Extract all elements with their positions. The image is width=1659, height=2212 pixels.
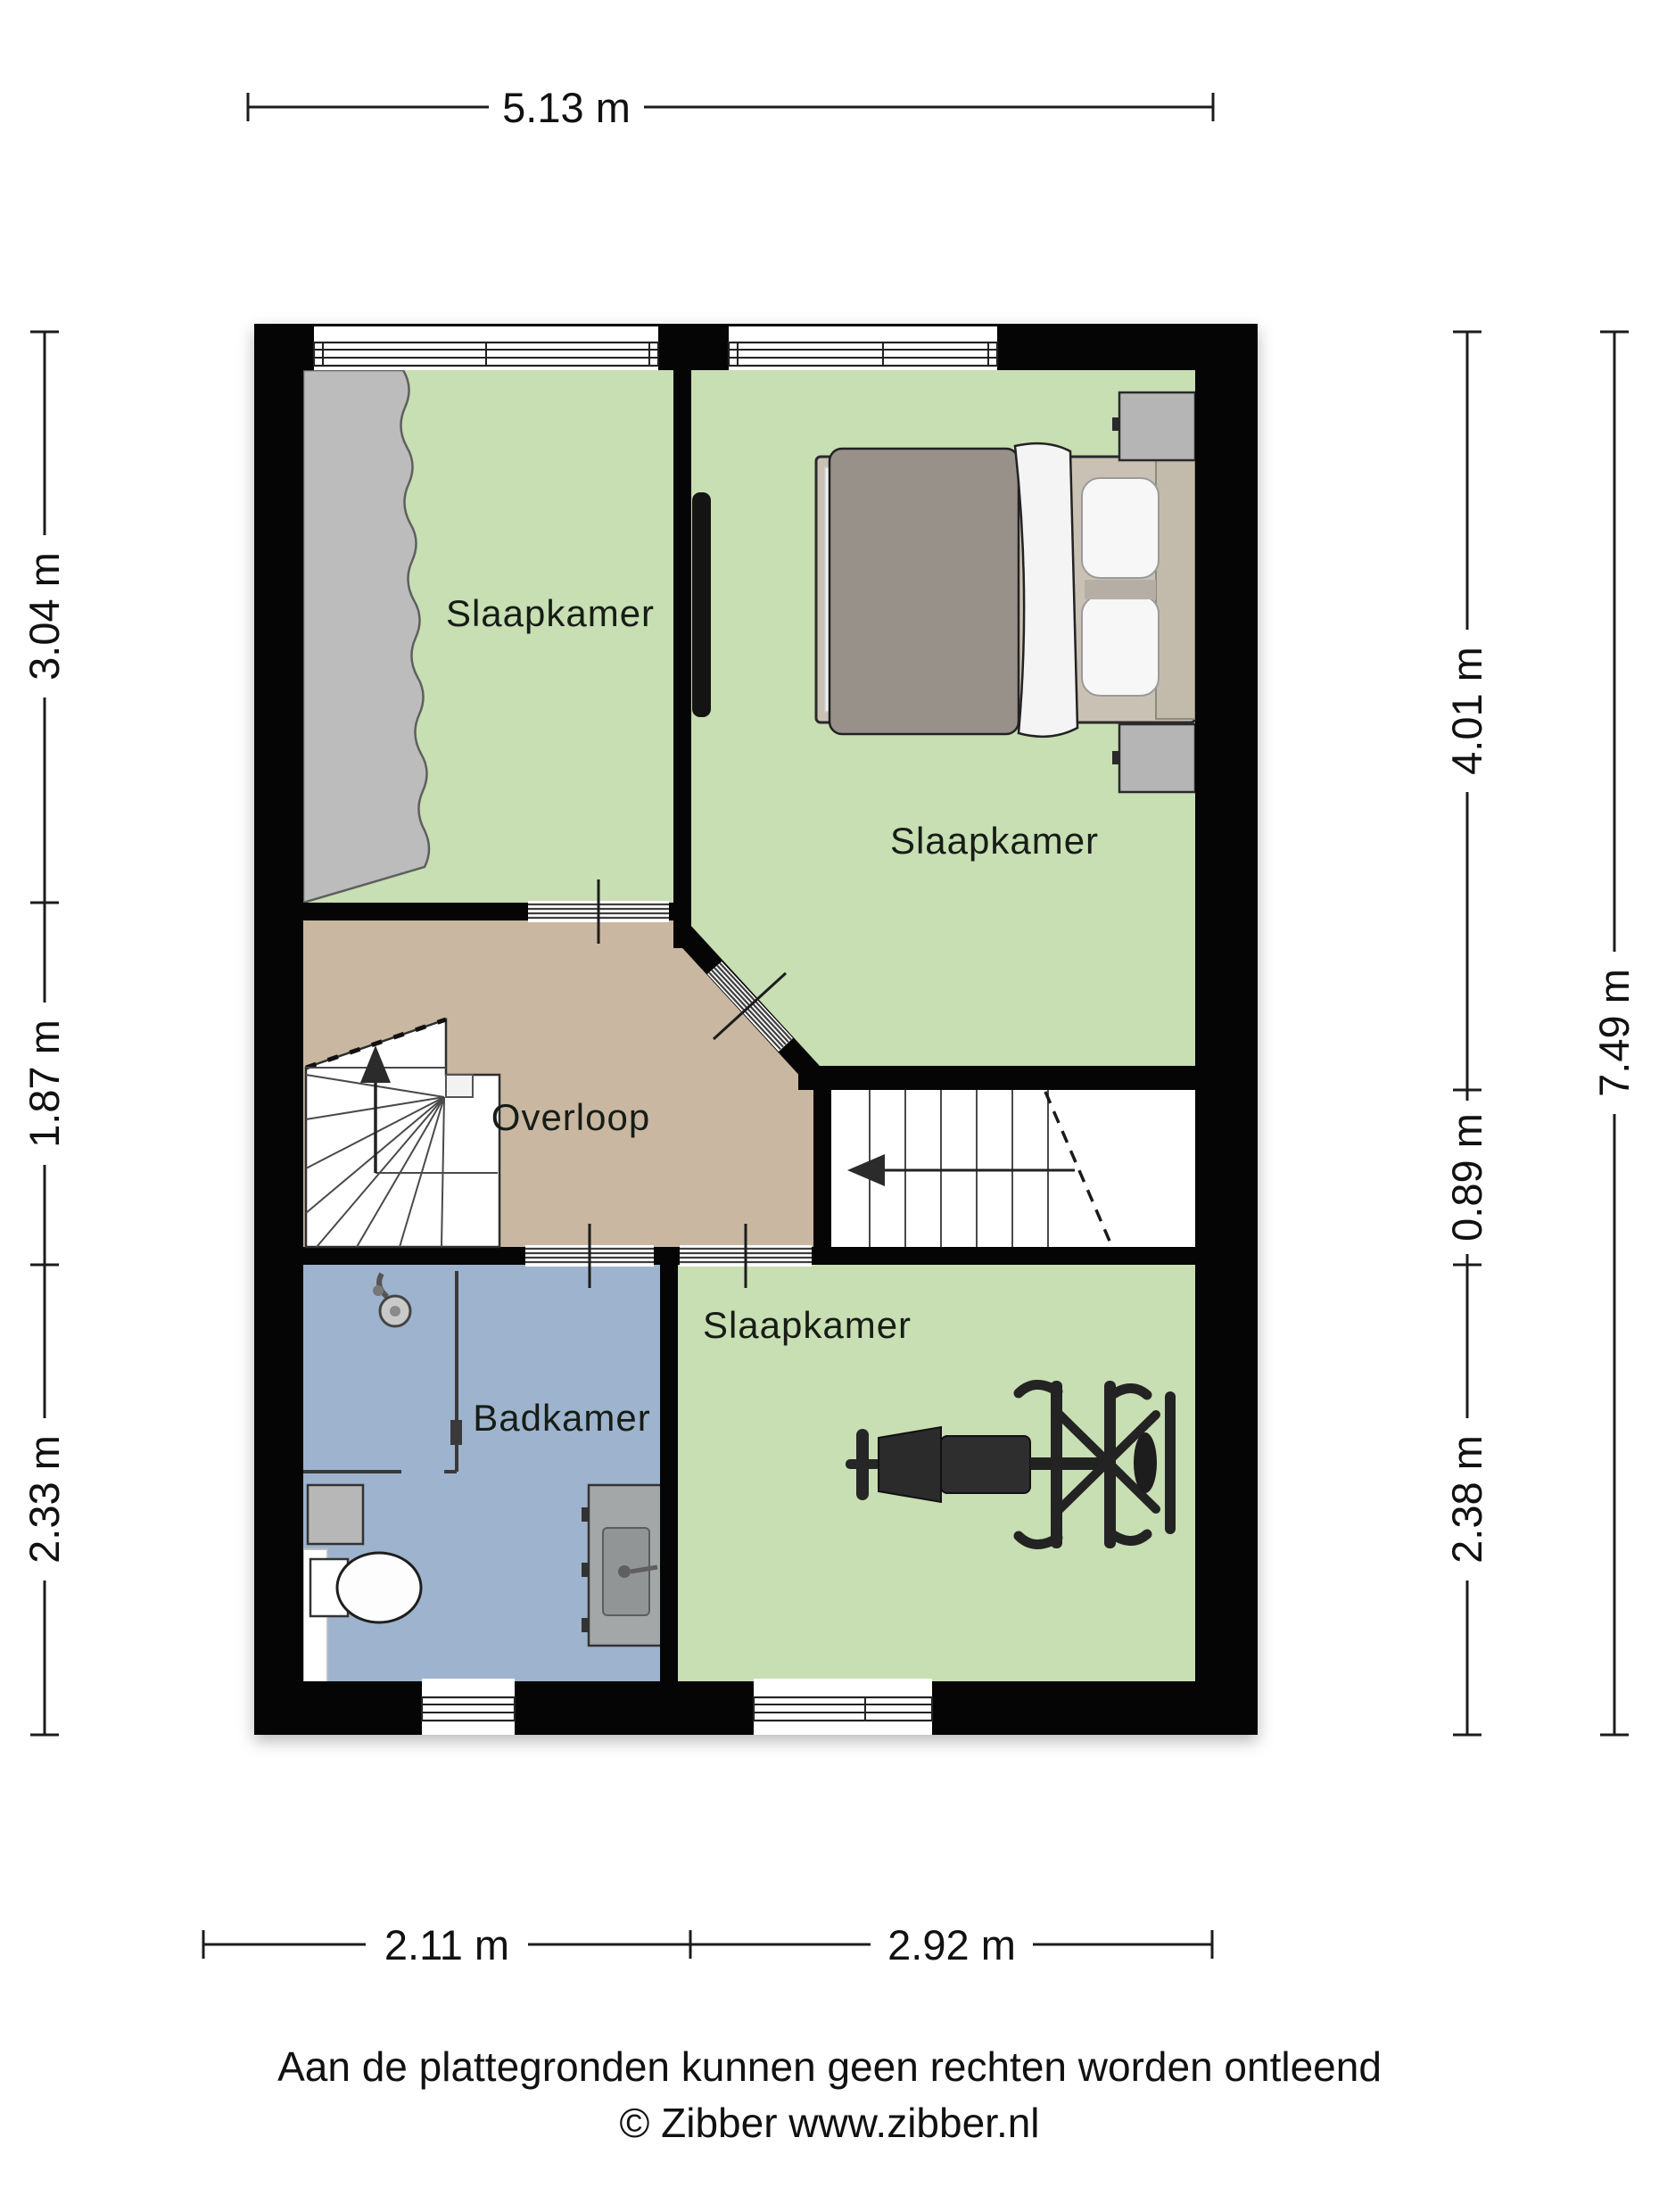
window-bottom-bedroom xyxy=(754,1679,932,1735)
dimension-top-label: 5.13 m xyxy=(502,84,631,131)
pillow-gap xyxy=(1085,580,1156,599)
dimension-right-3-label: 2.38 m xyxy=(1443,1435,1490,1564)
dimension-right-2-label: 0.89 m xyxy=(1443,1113,1490,1242)
dimension-top: 5.13 m xyxy=(248,84,1213,131)
tv-icon xyxy=(692,492,711,717)
nightstand xyxy=(1119,392,1195,460)
stairs-down xyxy=(831,1090,1195,1247)
wall-bedroom-stairwell xyxy=(798,1066,1258,1090)
floor-plan-canvas: Slaapkamer Slaapkamer Overloop Badkamer … xyxy=(0,0,1659,2212)
footer-disclaimer: Aan de plattegronden kunnen geen rechten… xyxy=(277,2043,1382,2090)
toilet-icon xyxy=(310,1553,421,1622)
dimension-right-outer: 7.49 m xyxy=(1590,332,1638,1735)
wall-bathroom-bedroom xyxy=(660,1265,678,1681)
nightstand xyxy=(1119,724,1195,792)
window-bathroom xyxy=(422,1679,515,1735)
label-bedroom-top-left: Slaapkamer xyxy=(446,592,655,634)
pillow xyxy=(1082,478,1159,578)
bed-duvet xyxy=(829,449,1019,734)
label-bathroom: Badkamer xyxy=(473,1397,650,1439)
dimension-bottom-1-label: 2.11 m xyxy=(384,1921,509,1969)
wall-between-top-bedrooms xyxy=(673,370,691,948)
window-top-left xyxy=(314,326,658,370)
bed-headboard xyxy=(1156,460,1195,719)
nightstand-handle xyxy=(1112,751,1120,764)
dimension-left-2-label: 1.87 m xyxy=(21,1019,68,1148)
wall-stairwell-bottom xyxy=(831,1247,1195,1265)
label-landing: Overloop xyxy=(491,1096,650,1138)
bed xyxy=(816,443,1195,737)
floor-plan-page: Slaapkamer Slaapkamer Overloop Badkamer … xyxy=(0,0,1659,2212)
building: Slaapkamer Slaapkamer Overloop Badkamer … xyxy=(254,324,1258,1735)
window-top-right xyxy=(729,326,997,370)
dimension-right-1-label: 4.01 m xyxy=(1443,647,1490,775)
pillow xyxy=(1082,596,1159,696)
footer-copyright: © Zibber www.zibber.nl xyxy=(619,2100,1039,2146)
wall-outer-right xyxy=(1195,324,1258,1735)
dimension-right-inner: 4.01 m 0.89 m 2.38 m xyxy=(1443,332,1490,1735)
wall-outer-left xyxy=(254,324,303,1735)
dimension-right-total-label: 7.49 m xyxy=(1590,969,1638,1097)
washer-icon xyxy=(308,1485,363,1544)
dimension-bottom-2-label: 2.92 m xyxy=(887,1921,1016,1969)
dimension-bottom: 2.11 m 2.92 m xyxy=(203,1921,1212,1969)
nightstand-handle xyxy=(1112,417,1120,431)
sink-icon xyxy=(582,1485,662,1646)
wall-landing-stairwell xyxy=(813,1090,831,1265)
label-bedroom-top-right: Slaapkamer xyxy=(890,820,1099,862)
dimension-left-1-label: 3.04 m xyxy=(21,552,68,681)
dimension-left: 3.04 m 1.87 m 2.33 m xyxy=(21,332,68,1735)
dimension-left-3-label: 2.33 m xyxy=(21,1435,68,1564)
label-bedroom-bottom: Slaapkamer xyxy=(703,1304,912,1346)
bed-folded-sheet xyxy=(1015,443,1077,737)
shower-door-handle xyxy=(450,1420,462,1445)
